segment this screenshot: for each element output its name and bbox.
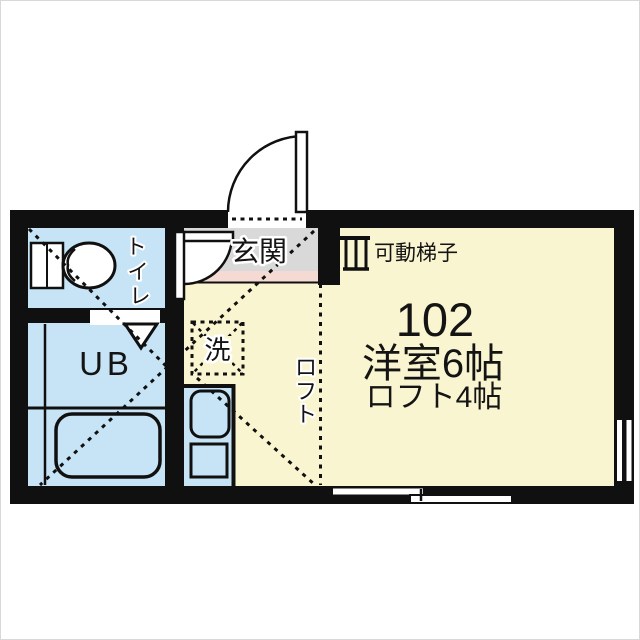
window-panel-outer: [616, 419, 623, 482]
bottom-wall: [10, 486, 634, 504]
loft-label-char-2: フ: [295, 379, 317, 404]
toilet-door-jamb: [175, 232, 184, 299]
interior-door-leaf: [183, 232, 233, 241]
entrance-side-wall-block: [318, 228, 340, 285]
top-wall-left: [10, 210, 228, 228]
loft-label-char-3: ト: [295, 402, 317, 427]
window-panel-right: [410, 495, 512, 503]
entrance-label: 玄関: [231, 236, 287, 267]
window-panel-inner: [626, 419, 633, 482]
toilet-label-char-2: イ: [128, 261, 149, 284]
toilet-fixture: [31, 243, 115, 288]
loft-label-char-1: ロ: [295, 355, 317, 380]
toilet-label-char-1: ト: [126, 236, 147, 259]
top-wall-right: [306, 210, 634, 228]
entrance-door-leaf: [296, 132, 307, 212]
ladder-icon: [340, 238, 370, 269]
ladder-label: 可動梯子: [374, 242, 458, 265]
toilet-bowl: [63, 243, 115, 288]
loft-size-label: ロフト4帖: [366, 381, 503, 414]
room-size-label: 洋室6帖: [362, 342, 504, 386]
unit-number-label: 102: [396, 293, 474, 346]
left-wall: [10, 210, 28, 504]
floorplan-image: 玄関 可動梯子 ト イ レ UB 洗 ロ フ ト 102 洋室6帖 ロフト4帖: [0, 0, 640, 640]
floorplan-svg: 玄関 可動梯子 ト イ レ UB 洗 ロ フ ト 102 洋室6帖 ロフト4帖: [0, 0, 640, 640]
toilet-label-char-3: レ: [130, 285, 151, 308]
unit-bath-label: UB: [79, 345, 133, 382]
washer-label: 洗: [204, 335, 230, 365]
